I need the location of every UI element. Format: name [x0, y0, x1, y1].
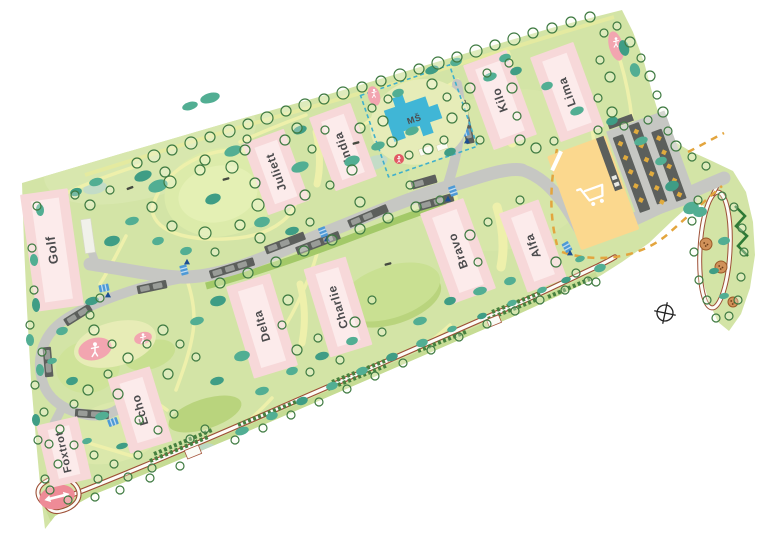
tree-icon	[547, 23, 557, 33]
tree-icon	[508, 33, 520, 45]
tree-icon	[712, 314, 720, 322]
tree-icon	[33, 202, 41, 210]
tree-icon	[70, 441, 78, 449]
tree-icon	[110, 460, 118, 468]
tree-icon	[605, 72, 615, 82]
tree-icon	[336, 356, 344, 364]
tree-icon	[483, 320, 491, 328]
tree-icon	[46, 486, 54, 494]
tree-icon	[243, 135, 251, 143]
tree-icon	[658, 107, 668, 117]
tree-icon	[231, 436, 239, 444]
tree-icon	[64, 496, 72, 504]
tree-icon	[384, 95, 392, 103]
tree-icon	[465, 230, 475, 240]
picnic-spot	[700, 238, 712, 250]
tree-icon	[592, 278, 600, 286]
tree-icon	[86, 311, 94, 319]
tree-icon	[299, 99, 311, 111]
tree-icon	[427, 346, 435, 354]
site-plan-map: MŠ Golf Juliett India Kilo Lima Bravo	[0, 0, 780, 547]
tree-icon	[490, 40, 500, 50]
tree-icon	[572, 269, 580, 277]
tree-icon	[200, 155, 210, 165]
tree-icon	[734, 296, 742, 304]
tree-icon	[399, 359, 407, 367]
tree-icon	[91, 493, 99, 501]
tree-icon	[688, 217, 696, 225]
tree-icon	[306, 218, 314, 226]
tree-icon	[455, 333, 463, 341]
tree-icon	[28, 244, 36, 252]
tree-icon	[355, 197, 365, 207]
tree-icon	[326, 181, 334, 189]
toddler-playground	[394, 154, 404, 164]
tree-icon	[261, 112, 273, 124]
tree-icon	[83, 385, 93, 395]
tree-icon	[259, 424, 267, 432]
tree-icon	[476, 136, 484, 144]
tree-icon	[551, 257, 561, 267]
tree-icon	[507, 83, 517, 93]
tree-icon	[585, 12, 595, 22]
tree-icon	[355, 224, 365, 234]
tree-icon	[135, 416, 143, 424]
tree-icon	[176, 340, 184, 348]
tree-icon	[192, 353, 200, 361]
tree-icon	[195, 165, 205, 175]
tree-icon	[56, 425, 64, 433]
tree-icon	[85, 200, 95, 210]
tree-icon	[355, 123, 365, 133]
tree-icon	[465, 83, 475, 93]
tree-icon	[730, 203, 738, 211]
tree-icon	[531, 143, 541, 153]
tree-icon	[703, 296, 711, 304]
tree-icon	[250, 178, 260, 188]
tree-icon	[154, 426, 162, 434]
tree-icon	[702, 162, 710, 170]
tree-icon	[470, 45, 482, 57]
tree-icon	[436, 196, 444, 204]
tree-icon	[536, 296, 544, 304]
tree-icon	[561, 286, 569, 294]
tree-icon	[690, 248, 698, 256]
tree-icon	[440, 136, 448, 144]
tree-icon	[158, 325, 168, 335]
tree-icon	[176, 462, 184, 470]
tree-icon	[148, 150, 160, 162]
tree-icon	[411, 202, 421, 212]
tree-icon	[292, 123, 302, 133]
tree-icon	[315, 398, 323, 406]
tree-icon	[423, 144, 433, 154]
tree-icon	[223, 125, 235, 137]
tree-icon	[600, 29, 608, 37]
tree-icon	[40, 408, 48, 416]
tree-icon	[584, 277, 592, 285]
tree-icon	[653, 91, 661, 99]
tree-icon	[170, 410, 178, 418]
tree-icon	[327, 235, 337, 245]
tree-icon	[71, 191, 79, 199]
tree-icon	[211, 248, 219, 256]
tree-icon	[594, 94, 602, 102]
tree-icon	[515, 135, 525, 145]
tree-icon	[378, 116, 388, 126]
tree-icon	[725, 312, 733, 320]
tree-icon	[26, 321, 34, 329]
tree-icon	[378, 328, 386, 336]
tree-icon	[243, 268, 253, 278]
tree-icon	[31, 381, 39, 389]
tree-icon	[299, 246, 309, 256]
tree-icon	[89, 325, 99, 335]
tree-icon	[45, 440, 53, 448]
tree-icon	[414, 64, 424, 74]
tree-icon	[319, 94, 329, 104]
tree-icon	[281, 106, 291, 116]
tree-icon	[205, 132, 215, 142]
tree-icon	[337, 87, 349, 99]
tree-canopy-icon	[199, 90, 221, 105]
tree-icon	[90, 451, 98, 459]
tree-icon	[54, 460, 62, 468]
tree-icon	[226, 161, 238, 173]
tree-icon	[215, 278, 225, 288]
tree-icon	[104, 370, 112, 378]
tree-icon	[596, 56, 604, 64]
tree-icon	[148, 464, 156, 472]
tree-icon	[108, 340, 116, 348]
tree-icon	[688, 153, 696, 161]
tree-icon	[516, 196, 524, 204]
tree-icon	[566, 17, 576, 27]
tree-icon	[371, 372, 379, 380]
tree-icon	[252, 199, 264, 211]
tree-icon	[737, 273, 745, 281]
survey-marker	[652, 300, 678, 326]
tree-icon	[240, 145, 250, 155]
tree-icon	[243, 119, 253, 129]
tree-icon	[94, 475, 102, 483]
tree-icon	[694, 196, 702, 204]
tree-icon	[443, 93, 451, 101]
tree-icon	[283, 295, 293, 305]
tree-icon	[116, 486, 124, 494]
tree-icon	[350, 317, 360, 327]
tree-icon	[160, 167, 170, 177]
route-dashed	[688, 133, 724, 152]
tree-icon	[123, 353, 133, 363]
tree-icon	[511, 307, 519, 315]
tree-icon	[607, 107, 617, 117]
tree-icon	[484, 218, 492, 226]
tree-icon	[278, 321, 286, 329]
tree-icon	[376, 76, 386, 86]
tree-icon	[300, 190, 310, 200]
tree-icon	[285, 205, 295, 215]
tree-icon	[287, 411, 295, 419]
tree-icon	[143, 340, 151, 348]
tree-icon	[271, 257, 281, 267]
tree-icon	[664, 127, 672, 135]
tree-icon	[387, 137, 397, 147]
tree-icon	[357, 82, 367, 92]
tree-icon	[106, 186, 114, 194]
tree-icon	[671, 141, 681, 151]
tree-icon	[280, 135, 290, 145]
tree-icon	[38, 348, 46, 356]
tree-icon	[645, 71, 655, 81]
tree-icon	[255, 233, 265, 243]
tree-icon	[70, 400, 78, 408]
tree-icon	[201, 425, 209, 433]
tree-icon	[513, 112, 521, 120]
tree-icon	[314, 334, 322, 342]
tree-icon	[163, 369, 173, 379]
tree-icon	[550, 137, 558, 145]
tree-icon	[292, 345, 302, 355]
tree-icon	[383, 213, 393, 223]
tree-icon	[405, 151, 413, 159]
tree-icon	[235, 220, 245, 230]
tree-icon	[740, 248, 748, 256]
tree-icon	[134, 451, 142, 459]
crosshair-lines	[652, 300, 678, 326]
tree-icon	[625, 37, 635, 47]
tree-icon	[185, 137, 197, 149]
tree-icon	[368, 296, 376, 304]
tree-icon	[432, 57, 444, 69]
tree-icon	[718, 192, 726, 200]
tree-icon	[368, 104, 376, 112]
tree-icon	[406, 181, 414, 189]
tree-icon	[96, 294, 104, 302]
tree-icon	[347, 165, 357, 175]
tree-icon	[306, 368, 314, 376]
tree-icon	[132, 158, 142, 168]
tree-icon	[30, 286, 38, 294]
tree-icon	[505, 59, 513, 67]
tree-icon	[644, 116, 652, 124]
tree-icon	[613, 22, 621, 30]
tree-icon	[34, 436, 42, 444]
tree-icon	[394, 69, 406, 81]
tree-icon	[164, 176, 176, 188]
site-plan-page: MŠ Golf Juliett India Kilo Lima Bravo	[0, 0, 780, 547]
tree-icon	[147, 202, 157, 212]
tree-icon	[113, 389, 123, 399]
tree-icon	[462, 103, 470, 111]
tree-icon	[452, 52, 462, 62]
tree-icon	[124, 473, 132, 481]
tree-icon	[695, 276, 703, 284]
tree-icon	[594, 126, 602, 134]
tree-icon	[167, 145, 177, 155]
tree-icon	[199, 227, 211, 239]
tree-icon	[41, 475, 49, 483]
tree-icon	[528, 28, 538, 38]
tree-icon	[637, 54, 645, 62]
tree-icon	[738, 224, 746, 232]
tree-icon	[308, 145, 316, 153]
tree-icon	[447, 113, 457, 123]
tree-icon	[474, 258, 482, 266]
tree-icon	[427, 79, 437, 89]
tree-icon	[321, 126, 329, 134]
tree-icon	[186, 435, 194, 443]
tree-icon	[343, 385, 351, 393]
tree-icon	[146, 474, 154, 482]
tree-icon	[167, 221, 177, 231]
tree-icon	[483, 69, 491, 77]
tree-canopy-icon	[181, 100, 199, 112]
tree-icon	[620, 122, 628, 130]
